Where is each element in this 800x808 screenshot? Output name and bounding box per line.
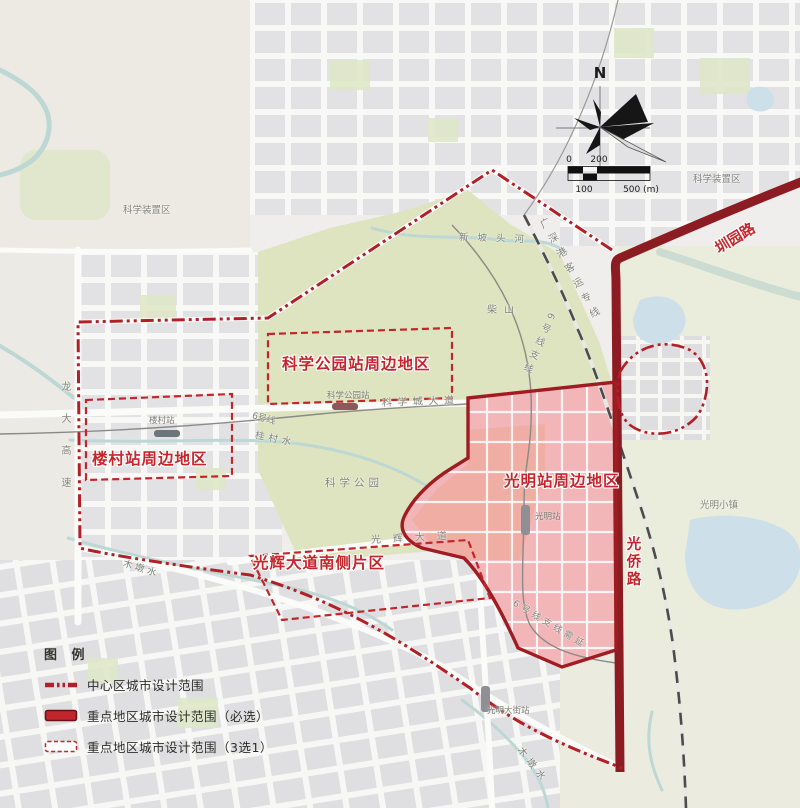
- legend-label-central-boundary: 中心区城市设计范围: [87, 675, 204, 694]
- station-marker-kexue-park: [332, 403, 358, 410]
- north-label: N: [594, 64, 607, 82]
- station-label-guangming-street: 光明大街站: [487, 707, 530, 716]
- legend: 图 例 中心区城市设计范围 重点地区城市设计范围（必选） 重点地区城市设计范围（…: [44, 644, 324, 756]
- station-label-loucun: 楼村站: [149, 417, 175, 426]
- scale-100: 100: [575, 185, 592, 195]
- station-label-kexue-park: 科学公园站: [327, 392, 370, 401]
- legend-item-key-area-required: 重点地区城市设计范围（必选）: [44, 706, 324, 725]
- legend-item-key-area-optional: 重点地区城市设计范围（3选1）: [44, 737, 324, 756]
- solid-red-rect-swatch-icon: [44, 709, 78, 722]
- district-label-loucun-station: 楼村站周边地区: [92, 452, 208, 468]
- place-label-guangming-town: 光明小镇: [700, 501, 738, 511]
- legend-item-central-boundary: 中心区城市设计范围: [44, 675, 324, 694]
- district-label-kexue-park-station: 科学公园站周边地区: [282, 357, 431, 373]
- water-label-xinpotou: 新坡头河: [459, 233, 533, 245]
- district-label-guanghui-south: 光辉大道南侧片区: [253, 556, 385, 572]
- station-label-guangming: 光明站: [535, 513, 561, 522]
- place-label-chaishan: 柴山: [487, 306, 521, 316]
- scale-200: 200: [590, 155, 607, 165]
- place-label-science-facility-west: 科学装置区: [123, 206, 171, 216]
- dashdot-line-swatch-icon: [44, 679, 78, 691]
- station-marker-guangming: [521, 505, 530, 535]
- planning-map: N 0 200 100 500 (m) 科学公园站周边地区 楼村站周边地区 光明…: [0, 0, 800, 808]
- scale-500m: 500 (m): [623, 185, 659, 195]
- road-label-guangqiao: 光侨路: [625, 536, 640, 589]
- place-label-science-park: 科学公园: [325, 478, 383, 489]
- dashed-red-rect-swatch-icon: [44, 740, 78, 753]
- district-label-guangming-station: 光明站周边地区: [504, 474, 620, 490]
- road-label-longda: 龙大高速: [59, 381, 69, 509]
- legend-title: 图 例: [44, 644, 324, 663]
- legend-label-key-area-optional: 重点地区城市设计范围（3选1）: [87, 737, 273, 756]
- scale-0: 0: [566, 155, 572, 165]
- place-label-science-facility-east: 科学装置区: [693, 175, 741, 185]
- station-marker-loucun: [154, 430, 180, 437]
- legend-label-key-area-required: 重点地区城市设计范围（必选）: [87, 706, 269, 725]
